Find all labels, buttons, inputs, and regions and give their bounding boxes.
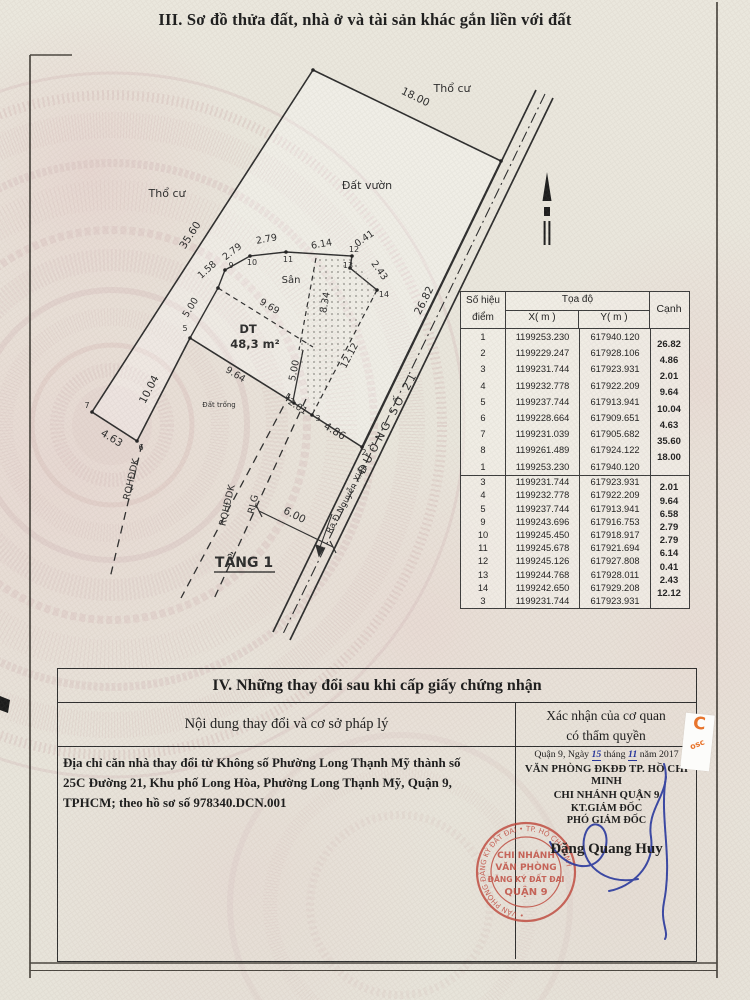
map-label: Ra Đ.Nguyễn Xiển (324, 462, 370, 535)
certificate-page: Thổ cư18.00Đất vườnThổ cư35.602.792.796.… (0, 0, 750, 1000)
map-label: 26.82 (412, 285, 436, 317)
edge-length: 2.01 (650, 371, 688, 382)
map-label: 2.79 (255, 232, 278, 247)
edge-length: 26.82 (650, 339, 688, 350)
map-label: 3 (315, 414, 320, 423)
map-label: Sân (282, 274, 301, 286)
section4-col2-header: Xác nhận của cơ quan có thẩm quyền (516, 703, 696, 746)
map-label: Đất trống (202, 401, 235, 409)
map-label: 5.00 (287, 359, 302, 382)
map-label: 18.00 (399, 85, 431, 109)
map-label: 5.00 (181, 296, 202, 320)
section4-col1-header: Nội dung thay đổi và cơ sở pháp lý (58, 703, 516, 746)
coordinate-ring-1: 11199253.230617940.12021199229.247617928… (461, 329, 689, 475)
edge-5m (293, 350, 303, 401)
map-label: 9.64 (223, 365, 247, 385)
edge-length: 6.14 (650, 548, 688, 559)
map-label: 14 (379, 290, 389, 299)
map-label: ĐƯỜNG SỐ 21 (354, 368, 420, 476)
coordinate-table-header: Số hiệu điểm Tọa độ X( m ) Y( m ) Cạnh (461, 292, 689, 329)
map-label: 2.01 (286, 396, 310, 417)
map-label: 35.60 (177, 219, 203, 251)
map-label: 9 (228, 261, 233, 270)
map-label: 6 (138, 443, 143, 452)
map-label: 4.63 (98, 427, 124, 449)
map-label: RLG (246, 494, 261, 515)
map-label: 6.14 (310, 237, 333, 252)
map-label: 13 (343, 261, 353, 270)
section4-box: IV. Những thay đổi sau khi cấp giấy chứn… (57, 668, 697, 962)
edge-length: 4.63 (650, 420, 688, 431)
map-label: Thổ cư (148, 187, 187, 200)
edge-length: 35.60 (650, 436, 688, 447)
edge-length: 2.01 (650, 482, 688, 493)
coordinate-table: Số hiệu điểm Tọa độ X( m ) Y( m ) Cạnh 1… (460, 291, 690, 609)
map-label: Đất vườn (342, 179, 392, 192)
parcel-boundary (92, 70, 501, 447)
map-label: 0.41 (353, 228, 377, 249)
section4-title: IV. Những thay đổi sau khi cấp giấy chứn… (58, 669, 696, 703)
section3-title: III. Sơ đồ thửa đất, nhà ở và tài sản kh… (40, 10, 690, 30)
planning-lines (110, 394, 306, 601)
edge-length: 2.79 (650, 522, 688, 533)
map-label: TẦNG 1 (215, 552, 273, 571)
map-label: 1.58 (196, 259, 219, 281)
header-toado: Tọa độ (506, 294, 649, 305)
map-label: Thổ cư (433, 82, 472, 95)
map-label: 4 (285, 392, 290, 401)
walkway-strip (299, 258, 377, 415)
map-label: 4.86 (321, 420, 347, 442)
house-boundary (190, 252, 377, 338)
edge-length: 18.00 (650, 452, 688, 463)
edge-length: 9.64 (650, 496, 688, 507)
road-width-measure (256, 505, 336, 553)
map-label: 9.69 (257, 297, 281, 317)
map-label: DT (239, 322, 257, 336)
sticker-text: osc (689, 738, 706, 752)
map-label: 2.43 (368, 259, 389, 283)
map-label: RQHĐDK (121, 457, 141, 501)
map-label: 11 (283, 255, 293, 264)
signer-name: Đặng Quang Huy (519, 841, 694, 858)
edge-length: 2.43 (650, 575, 688, 586)
map-label: 10.04 (137, 373, 162, 405)
map-label: 5 (182, 324, 187, 333)
map-label: 48,3 m² (230, 337, 279, 351)
coordinate-ring-2: 31199231.744617923.93141199232.778617922… (461, 475, 689, 608)
edge-length: 12.12 (650, 588, 688, 599)
edge-length: 9.64 (650, 387, 688, 398)
edge-length: 0.41 (650, 562, 688, 573)
map-label: 12 (349, 245, 359, 254)
map-label: 7 (84, 401, 89, 410)
north-arrow-icon (543, 172, 552, 245)
header-x: X( m ) (506, 312, 578, 323)
edge-length: 4.86 (650, 355, 688, 366)
map-label: 10 (247, 258, 257, 267)
map-label: 8.34 (318, 291, 333, 314)
map-label: 2.79 (221, 241, 244, 263)
header-point-2: điểm (461, 312, 505, 323)
map-label: 2 (361, 448, 366, 457)
header-canh: Cạnh (650, 303, 688, 315)
map-label: 6.00 (281, 505, 307, 526)
edge-length: 10.04 (650, 404, 688, 415)
edge-length: 2.79 (650, 535, 688, 546)
change-content: Địa chỉ căn nhà thay đổi từ Không số Phư… (63, 753, 511, 813)
header-point-1: Số hiệu (461, 295, 505, 306)
vertex-markers (90, 68, 503, 449)
dashed-lines (218, 258, 377, 415)
orange-logo-sticker: C osc (680, 713, 715, 772)
map-label: 12.12 (339, 341, 361, 370)
edge-length: 6.58 (650, 509, 688, 520)
header-y: Y( m ) (579, 312, 649, 323)
sticker-c-glyph: C (684, 713, 715, 736)
direction-arrow (316, 514, 332, 556)
map-label: RQHĐDK (217, 483, 237, 527)
map-labels: Thổ cư18.00Đất vườnThổ cư35.602.792.796.… (84, 82, 471, 571)
